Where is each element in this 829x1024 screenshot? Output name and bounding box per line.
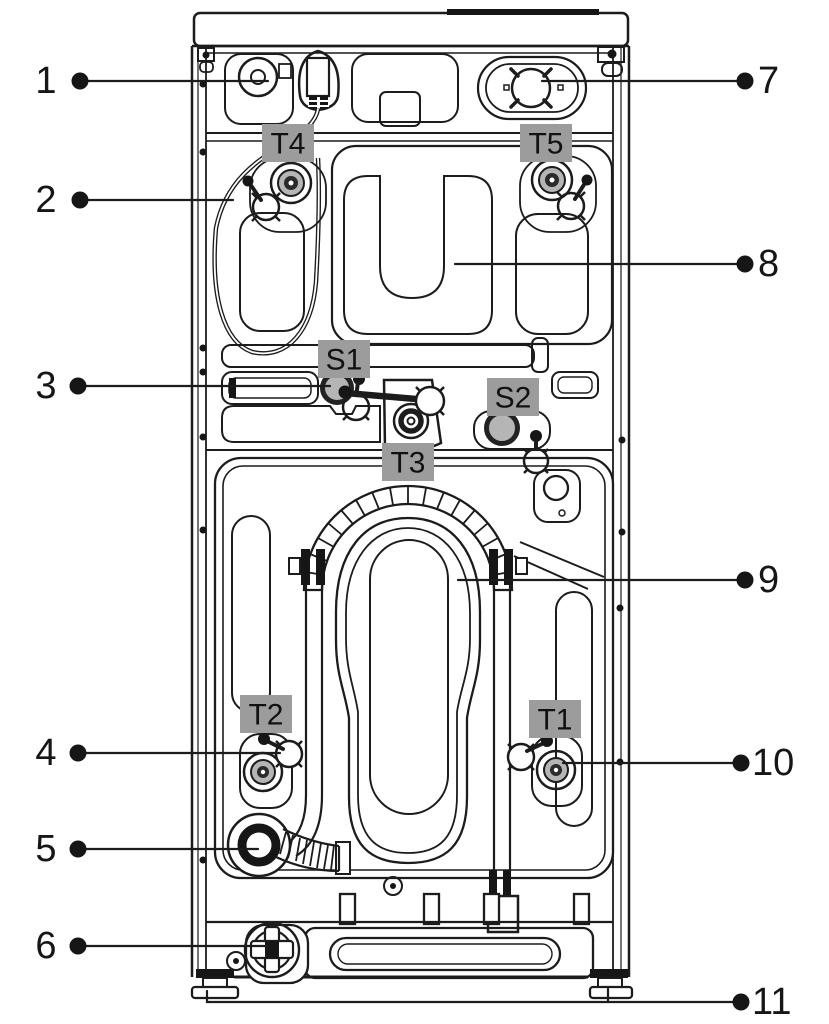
pump-filter — [227, 923, 308, 983]
tag-t3: T3 — [382, 443, 434, 481]
t4-clamp-valve — [243, 176, 281, 222]
callout-10-label: 10 — [752, 742, 794, 784]
drain-port — [228, 814, 290, 876]
callout-3-label: 3 — [35, 365, 56, 407]
right-slot — [552, 372, 598, 398]
lid-trim-strip — [447, 9, 599, 15]
water-inlet-valve — [239, 58, 291, 96]
callout-2: 2 — [35, 179, 233, 221]
left-emboss-lower — [232, 516, 270, 712]
right-foot — [590, 969, 632, 998]
tag-t2-label: T2 — [248, 699, 283, 732]
top-emboss — [352, 54, 458, 122]
tag-s1-label: S1 — [326, 344, 363, 377]
tag-t5-label: T5 — [528, 128, 563, 161]
callout-11-label: 11 — [752, 981, 791, 1023]
kick-panel-handle — [330, 938, 560, 970]
left-slot — [222, 372, 318, 404]
sensor-s2 — [487, 413, 518, 444]
t2-assembly — [240, 733, 302, 808]
bottom-section — [192, 922, 632, 998]
power-cord-bracket — [299, 51, 338, 110]
callout-6: 6 — [35, 925, 267, 967]
right-hose — [488, 549, 527, 932]
callout-5: 5 — [35, 828, 258, 870]
left-hose-clamp — [301, 549, 310, 585]
callout-6-label: 6 — [35, 925, 56, 967]
callout-8: 8 — [455, 243, 779, 285]
callout-11: 11 — [207, 981, 791, 1023]
callout-8-label: 8 — [758, 243, 779, 285]
callout-1: 1 — [35, 60, 268, 102]
left-hose — [288, 549, 325, 856]
callout-4-label: 4 — [35, 732, 56, 774]
callout-2-label: 2 — [35, 179, 56, 221]
corner-screw-right — [598, 47, 624, 76]
cross-rail — [222, 345, 534, 367]
tag-s2: S2 — [487, 378, 539, 416]
top-lid — [194, 13, 628, 46]
callout-10: 10 — [563, 742, 794, 784]
callout-5-label: 5 — [35, 828, 56, 870]
tag-t4: T4 — [262, 124, 314, 162]
lower-rail — [222, 406, 380, 442]
t1-assembly — [508, 735, 582, 806]
right-access-plate — [534, 470, 580, 522]
tag-t1-label: T1 — [537, 704, 572, 737]
callout-9-label: 9 — [758, 559, 779, 601]
diagram-page: 1 2 3 4 5 6 7 — [0, 0, 829, 1024]
clip-tabs — [340, 894, 589, 924]
tag-t3-label: T3 — [390, 447, 425, 480]
u-shaped-emboss — [344, 176, 492, 334]
tag-t1: T1 — [529, 700, 581, 738]
left-foot — [192, 969, 238, 998]
tag-s2-label: S2 — [495, 382, 532, 415]
upper-panel — [206, 51, 613, 353]
drum-outline — [336, 518, 480, 863]
tag-t4-label: T4 — [270, 128, 305, 161]
mid-panel — [240, 146, 612, 344]
fan-valve-port — [478, 57, 586, 119]
callout-7-label: 7 — [758, 60, 779, 102]
appliance-rear-diagram: 1 2 3 4 5 6 7 — [0, 0, 829, 1024]
tag-t2: T2 — [240, 695, 292, 733]
tag-s1: S1 — [318, 340, 370, 378]
callout-1-label: 1 — [35, 60, 56, 102]
power-plug — [307, 58, 329, 96]
tag-t5: T5 — [520, 124, 572, 162]
